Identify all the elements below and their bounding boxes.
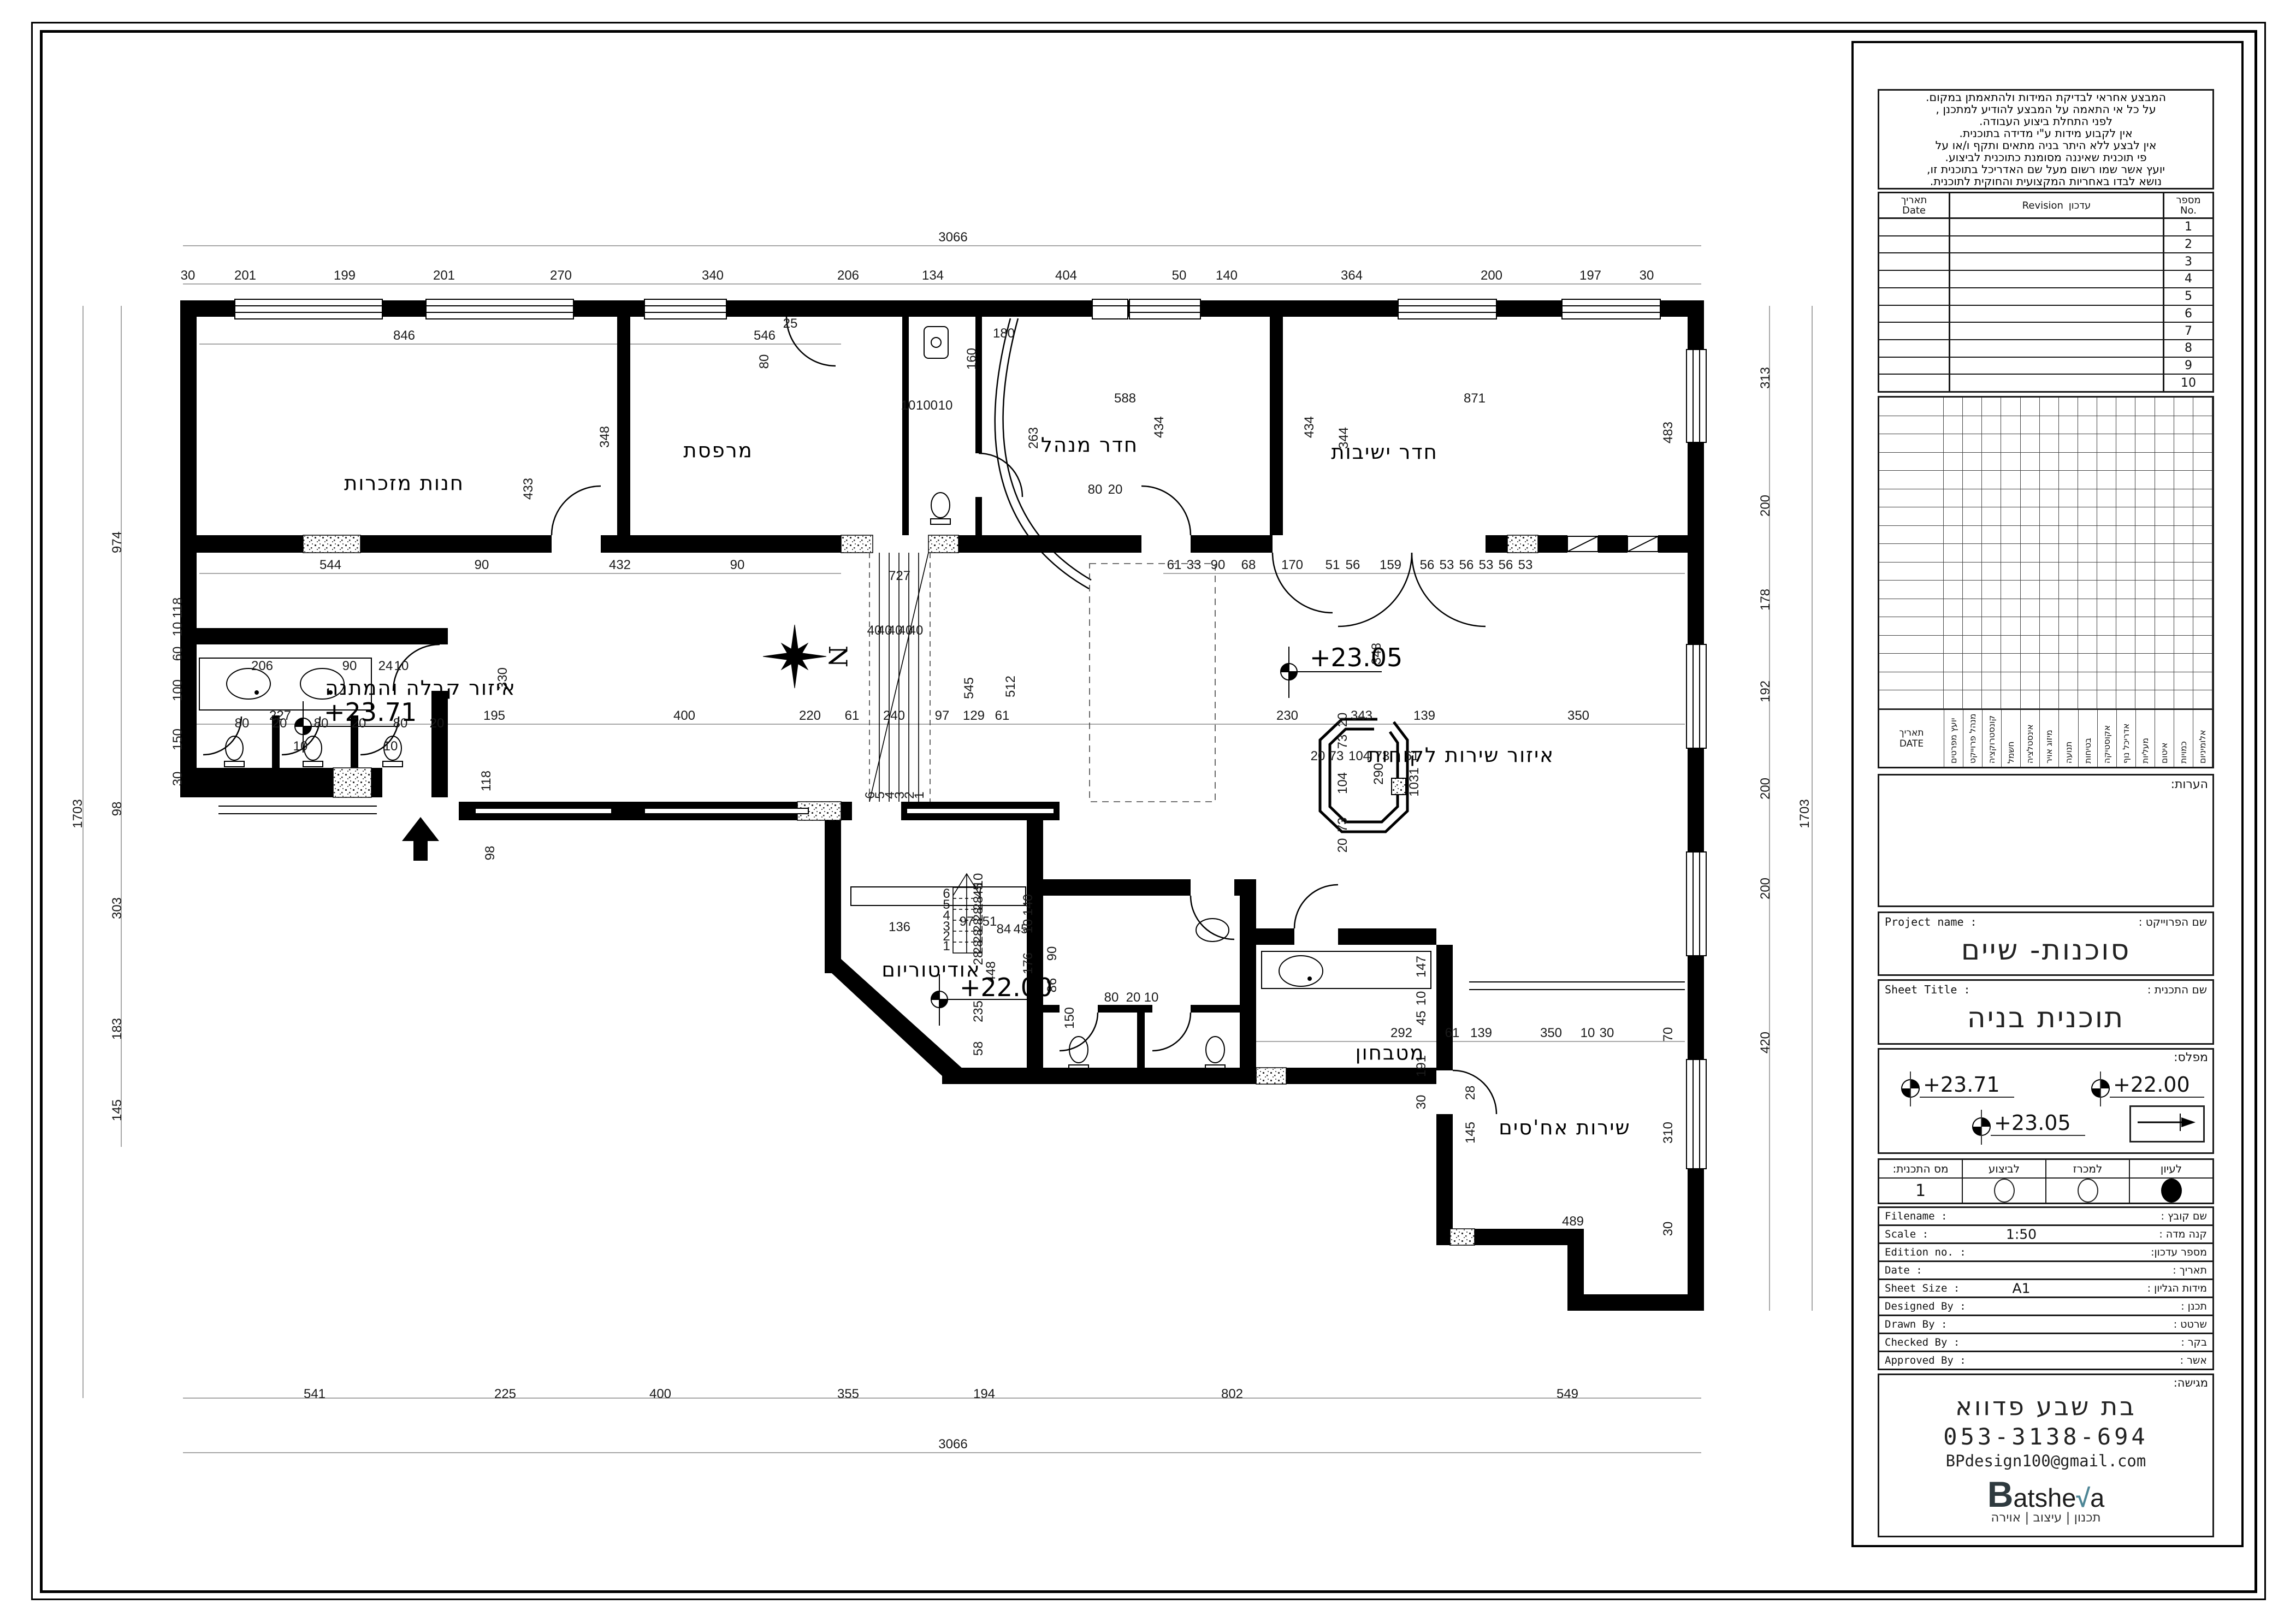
status-for-tender	[2046, 1179, 2130, 1203]
consultant-cell	[2001, 581, 2020, 599]
revision-row: 7	[1879, 323, 2212, 340]
consultant-cell	[2116, 398, 2135, 416]
consultant-column-label: איטום	[2155, 710, 2174, 767]
consultant-cell	[1944, 599, 1963, 618]
dim-label: 20	[1108, 482, 1123, 497]
consultant-cell	[2001, 416, 2020, 435]
dim-label: 313	[1758, 367, 1773, 389]
consultant-cell	[2059, 471, 2078, 489]
consultant-cell	[2155, 599, 2174, 618]
consultant-cell	[2021, 563, 2040, 581]
dim-label: 846	[393, 328, 415, 343]
consultant-cell	[2174, 434, 2193, 453]
consultant-cell	[1879, 654, 1944, 672]
consultant-cell	[2021, 544, 2040, 563]
consultant-cell	[1944, 617, 1963, 636]
consultant-cell	[1879, 672, 1944, 691]
consultant-column-label: מנהל פרוייקט	[1963, 710, 1983, 767]
consultant-column-label: תנועה	[2059, 710, 2078, 767]
consultant-cell	[2097, 471, 2116, 489]
dim-label: 90	[730, 558, 745, 572]
dim-label: 201	[234, 268, 256, 283]
level-marker: +23.05	[1972, 1111, 2085, 1136]
info-row: Edition no. :מספר עדכון:	[1878, 1242, 2214, 1260]
dim-label: 194	[973, 1387, 995, 1401]
consultant-cell	[2078, 599, 2097, 618]
consultant-cell	[2116, 690, 2135, 709]
dim-label: 1	[943, 939, 950, 954]
dim-label: 10	[938, 398, 953, 413]
dim-label: 90	[475, 558, 489, 572]
dim-label: 512	[1003, 676, 1018, 697]
sheet-label-en: Sheet Title :	[1885, 983, 1970, 996]
consultant-cell	[2001, 398, 2020, 416]
consultant-cell	[1963, 581, 1982, 599]
project-name: סוכנות- שיים	[1879, 934, 2212, 967]
note-line: על כל אי התאמה על המבצע להודיע למתכנן ,	[1879, 103, 2212, 115]
revision-row: 3	[1879, 253, 2212, 271]
revision-row: 5	[1879, 288, 2212, 306]
level-label: +22.00	[960, 973, 1052, 1002]
dim-label: 73	[1335, 818, 1350, 832]
consultant-cell	[1982, 507, 2001, 526]
dim-label: 140	[1216, 268, 1238, 283]
consultant-cell	[2078, 690, 2097, 709]
consultant-cell	[2078, 398, 2097, 416]
dim-label: 90	[1045, 946, 1060, 961]
dim-label: 30	[1640, 268, 1654, 283]
consultant-cell	[2116, 654, 2135, 672]
dim-label: 206	[251, 659, 273, 673]
consultant-cell	[2116, 434, 2135, 453]
consultant-cell	[2078, 489, 2097, 508]
dim-label: 340	[702, 268, 724, 283]
note-line: אין לקבוע מידות ע"י מדידה בתוכנית.	[1879, 127, 2212, 139]
notes-box: המבצע אחראי לבדיקת המידות ולהתאמתן במקום…	[1878, 89, 2214, 190]
consultant-cell	[2040, 581, 2059, 599]
main-stairs	[869, 553, 1215, 802]
consultant-cell	[2021, 416, 2040, 435]
consultant-column-label: בטיחות	[2079, 710, 2098, 767]
consultant-cell	[1982, 398, 2001, 416]
consultant-cell	[2097, 453, 2116, 471]
room-label: שירות אח'סים	[1499, 1116, 1630, 1139]
dim-label: 549	[1557, 1387, 1578, 1401]
dim-label: 50	[1172, 268, 1187, 283]
level-symbol-icon	[1972, 1117, 1991, 1136]
consultant-cell	[2135, 526, 2155, 544]
consultant-cell	[2001, 507, 2020, 526]
consultant-cell	[2078, 563, 2097, 581]
consultant-cell	[1879, 526, 1944, 544]
consultant-cell	[2135, 544, 2155, 563]
revision-rows: 12345678910	[1879, 219, 2212, 391]
consultant-cell	[2078, 416, 2097, 435]
consultant-cell	[2155, 563, 2174, 581]
dim-label: 240	[883, 708, 905, 723]
consultant-cell	[1963, 563, 1982, 581]
consultant-cell	[2078, 471, 2097, 489]
consultant-column-label: קונסטרוקציה	[1983, 710, 2002, 767]
dim-label: 80	[1104, 990, 1119, 1005]
dim-label: 10	[394, 659, 409, 673]
dim-label: 40	[909, 623, 924, 638]
dim-label: 400	[673, 708, 695, 723]
consultant-cell	[2059, 563, 2078, 581]
consultant-cell	[2001, 636, 2020, 654]
dim-label: 160	[964, 348, 979, 370]
hatch-patches	[303, 535, 1538, 1245]
consultant-cell	[2078, 453, 2097, 471]
dim-label: 200	[1481, 268, 1502, 283]
consultant-cell	[2135, 398, 2155, 416]
consultant-cell	[2059, 526, 2078, 544]
status-header: למכרז	[2046, 1160, 2130, 1177]
consultant-cell	[2155, 398, 2174, 416]
consultant-cell	[1963, 489, 1982, 508]
consultant-cell	[1982, 690, 2001, 709]
consultant-cell	[2155, 654, 2174, 672]
dim-label: 30	[1600, 1026, 1614, 1040]
consultant-cell	[2001, 526, 2020, 544]
note-line: נושא לבדו באחריות המקצועית והחוקית לתוכנ…	[1879, 175, 2212, 187]
consultant-cell	[1963, 544, 1982, 563]
consultant-cell	[2001, 544, 2020, 563]
consultants-date-cell: תאריך DATE	[1879, 710, 1944, 767]
dim-label: 10	[170, 622, 185, 637]
dim-label: 58	[971, 1041, 986, 1056]
dim-label: 159	[1380, 558, 1401, 572]
consultant-cell	[2059, 544, 2078, 563]
consultant-column-label: מעליות	[2136, 710, 2155, 767]
consultant-cell	[2193, 599, 2212, 618]
dim-label: 53	[1479, 558, 1494, 572]
info-row: Filename :שם קובץ :	[1878, 1206, 2214, 1224]
consultant-cell	[2174, 507, 2193, 526]
dim-label: 1703	[1797, 799, 1812, 828]
dim-label: 974	[110, 531, 125, 553]
dim-label: 230	[1276, 708, 1298, 723]
consultant-cell	[2001, 690, 2020, 709]
dim-label: 61	[1445, 1026, 1460, 1040]
consultant-cell	[2021, 690, 2040, 709]
room-label: חדר ישיבות	[1331, 440, 1438, 464]
consultant-cell	[2059, 599, 2078, 618]
consultant-cell	[1963, 416, 1982, 435]
consultant-cell	[2174, 398, 2193, 416]
consultant-cell	[2193, 636, 2212, 654]
dim-label: 10	[293, 739, 308, 754]
consultant-cell	[2021, 489, 2040, 508]
consultant-cell	[1963, 453, 1982, 471]
consultant-cell	[2174, 599, 2193, 618]
consultant-column-label: אקוסטיקה	[2098, 710, 2117, 767]
consultant-cell	[1982, 526, 2001, 544]
consultant-cell	[1963, 654, 1982, 672]
consultant-column-label: אדריכל נוף	[2117, 710, 2136, 767]
dim-label: 61	[1167, 558, 1182, 572]
dim-label: 68	[1241, 558, 1256, 572]
consultant-cell	[2001, 471, 2020, 489]
consultant-cell	[2155, 690, 2174, 709]
consultant-cell	[2040, 434, 2059, 453]
dim-label: 180	[993, 326, 1015, 341]
consultant-cell	[2193, 690, 2212, 709]
dim-label: 84	[997, 922, 1011, 937]
info-row: Sheet Size :A1מידות הגליון :	[1878, 1278, 2214, 1297]
note-line: אין לבצע ללא היתר בניה מתאים ותקף ו/או ע…	[1879, 139, 2212, 151]
consultant-cell	[2078, 544, 2097, 563]
consultant-cell	[1879, 544, 1944, 563]
rev-date-en: Date	[1902, 205, 1926, 216]
dim-label: 51	[1325, 558, 1340, 572]
dim-label: 220	[799, 708, 821, 723]
levels-label: מפלס:	[2174, 1051, 2208, 1064]
consultant-cell	[1982, 617, 2001, 636]
dim-label: 364	[1341, 268, 1363, 283]
consultant-cell	[2059, 636, 2078, 654]
consultants-date-he: תאריך	[1899, 727, 1924, 738]
dim-label: 136	[889, 920, 910, 934]
consultant-cell	[1879, 690, 1944, 709]
room-label: חנות מזכרות	[344, 471, 464, 495]
consultant-cell	[2040, 453, 2059, 471]
dim-label: 292	[1390, 1026, 1412, 1040]
consultant-cell	[2001, 672, 2020, 691]
dim-label: 588	[1114, 391, 1136, 406]
consultant-cell	[2097, 507, 2116, 526]
consultant-cell	[1944, 471, 1963, 489]
dim-label: 350	[1567, 708, 1589, 723]
dim-label: 10	[1021, 919, 1035, 934]
status-header: מס התכנית:	[1879, 1160, 1963, 1177]
consultant-cell	[2097, 672, 2116, 691]
consultant-cell	[2040, 526, 2059, 544]
dim-label: 20	[273, 716, 287, 731]
revision-row: 4	[1879, 271, 2212, 288]
consultant-cell	[2021, 636, 2040, 654]
consultant-cell	[2193, 617, 2212, 636]
consultant-cell	[2078, 507, 2097, 526]
dim-label: 355	[837, 1387, 859, 1401]
consultant-cell	[2097, 599, 2116, 618]
consultant-cell	[2116, 416, 2135, 435]
consultant-cell	[1963, 617, 1982, 636]
dim-label: 129	[963, 708, 985, 723]
consultant-cell	[2193, 471, 2212, 489]
dim-label: 10	[1144, 990, 1159, 1005]
dim-label: 150	[170, 729, 185, 750]
project-label-he: שם הפרוייקט :	[2139, 915, 2207, 928]
revision-header: תאריךDate Revisionעדכון מספרNo.	[1879, 193, 2212, 219]
consultant-cell	[1963, 398, 1982, 416]
dim-label: 195	[483, 708, 505, 723]
info-row: Scale :1:50קנה מדה :	[1878, 1224, 2214, 1242]
dim-label: 1	[912, 791, 927, 798]
batsheva-logo: Batshe√a	[1879, 1473, 2212, 1515]
consultant-cell	[2116, 563, 2135, 581]
consultant-cell	[1944, 563, 1963, 581]
consultant-cell	[1944, 581, 1963, 599]
submitter-box: מגישה: בת שבע פדווא 053-3138-694 BPdesig…	[1878, 1374, 2214, 1537]
dim-label: 10	[971, 873, 986, 888]
dim-label: 170	[1281, 558, 1303, 572]
dim-label: 434	[1152, 416, 1167, 438]
dim-label: 98	[483, 846, 498, 861]
consultant-cell	[2116, 453, 2135, 471]
consultant-cell	[2021, 599, 2040, 618]
rev-col-he: עדכון	[2069, 200, 2091, 211]
consultant-cell	[2059, 581, 2078, 599]
dim-label: 90	[1211, 558, 1226, 572]
dim-label: 483	[1661, 422, 1676, 443]
consultant-cell	[2155, 453, 2174, 471]
dim-label: 20	[1335, 713, 1350, 727]
consultant-cell	[2135, 489, 2155, 508]
consultant-cell	[2059, 672, 2078, 691]
consultant-cell	[1879, 489, 1944, 508]
consultant-cell	[2021, 672, 2040, 691]
consultant-cell	[2116, 636, 2135, 654]
consultant-cell	[2193, 398, 2212, 416]
level-marker: +23.71	[1901, 1073, 2014, 1098]
dim-label: 192	[1758, 680, 1773, 702]
dim-label: 140	[1021, 894, 1035, 916]
consultant-cell	[1982, 471, 2001, 489]
revision-row: 10	[1879, 375, 2212, 391]
walls	[180, 300, 1704, 1311]
octagon-counter	[1320, 719, 1407, 832]
revision-row: 6	[1879, 306, 2212, 323]
dim-label: 56	[1346, 558, 1360, 572]
level-value: +23.05	[1991, 1111, 2085, 1136]
revision-row: 8	[1879, 340, 2212, 358]
dim-label: 10	[901, 398, 916, 413]
consultant-cell	[2001, 453, 2020, 471]
dim-label: 97	[935, 708, 950, 723]
consultant-cell	[1944, 398, 1963, 416]
dim-label: 434	[1302, 416, 1317, 438]
consultant-cell	[2078, 617, 2097, 636]
consultant-cell	[2193, 416, 2212, 435]
logo-tagline: תכנון | עיצוב | אוירה	[1879, 1511, 2212, 1525]
note-line: המבצע אחראי לבדיקת המידות ולהתאמתן במקום…	[1879, 91, 2212, 103]
consultant-cell	[2097, 398, 2116, 416]
level-value: +22.00	[2110, 1073, 2204, 1098]
rev-no-en: No.	[2180, 205, 2197, 216]
revision-table: תאריךDate Revisionעדכון מספרNo. 12345678…	[1878, 192, 2214, 393]
consultant-cell	[2097, 563, 2116, 581]
consultant-cell	[1879, 471, 1944, 489]
consultant-cell	[2174, 489, 2193, 508]
sheet-title-box: Sheet Title : שם התכנית : תוכנית בניה	[1878, 979, 2214, 1045]
info-row: Checked By :בקר :	[1878, 1333, 2214, 1351]
dim-label: 30	[170, 772, 185, 786]
consultant-cell	[2155, 507, 2174, 526]
consultant-cell	[2155, 672, 2174, 691]
consultant-cell	[1982, 453, 2001, 471]
consultant-cell	[2135, 636, 2155, 654]
info-row: Approved By :אשר :	[1878, 1351, 2214, 1370]
consultant-cell	[2059, 489, 2078, 508]
consultant-cell	[2193, 672, 2212, 691]
consultant-cell	[2097, 544, 2116, 563]
consultant-cell	[2116, 672, 2135, 691]
consultant-cell	[2193, 526, 2212, 544]
dim-label: 98	[110, 802, 125, 816]
direction-arrow-box	[2129, 1105, 2205, 1142]
consultant-cell	[2021, 434, 2040, 453]
consultant-cell	[2155, 526, 2174, 544]
dim-label: 544	[319, 558, 341, 572]
dim-label: 10	[383, 739, 398, 754]
dim-label: 100	[170, 679, 185, 701]
consultant-cell	[2135, 672, 2155, 691]
status-table: מס התכנית:לביצועלמכרזלעיון 1	[1878, 1158, 2214, 1204]
consultant-cell	[2193, 563, 2212, 581]
consultant-column-label: כמויות	[2174, 710, 2193, 767]
consultant-cell	[2116, 489, 2135, 508]
consultant-cell	[2135, 471, 2155, 489]
consultant-cell	[2097, 690, 2116, 709]
consultant-cell	[1944, 672, 1963, 691]
consultant-cell	[2174, 471, 2193, 489]
dim-label: 145	[110, 1099, 125, 1121]
consultant-cell	[2040, 617, 2059, 636]
consultant-cell	[1944, 507, 1963, 526]
status-for-review	[2130, 1179, 2212, 1203]
status-values: 1	[1879, 1179, 2212, 1203]
dim-label: 3066	[938, 230, 967, 245]
dim-label: 727	[889, 569, 910, 583]
revision-row: 9	[1879, 358, 2212, 375]
level-value: +23.71	[1920, 1073, 2014, 1098]
consultant-cell	[2001, 654, 2020, 672]
consultant-cell	[2021, 581, 2040, 599]
dim-label: 20	[1311, 749, 1325, 763]
consultant-cell	[1944, 636, 1963, 654]
kitchen-sink	[1279, 956, 1323, 986]
consultants-labels: תאריך DATE יועץ מפרטיםמנהל פרוייקטקונסטר…	[1879, 709, 2212, 767]
consultant-cell	[2040, 507, 2059, 526]
consultant-cell	[2155, 416, 2174, 435]
submitter-phone: 053-3138-694	[1879, 1423, 2212, 1450]
status-for-execution	[1963, 1179, 2046, 1203]
consultant-cell	[2040, 489, 2059, 508]
consultant-cell	[2040, 672, 2059, 691]
dim-label: 10	[1414, 991, 1429, 1006]
note-line: פי תוכנית שאיננה מסומנת כתוכנית לביצוע.	[1879, 151, 2212, 163]
consultant-cell	[2040, 654, 2059, 672]
dim-label: 206	[837, 268, 859, 283]
dim-label: 270	[550, 268, 572, 283]
info-row: Designed By :תכנן :	[1878, 1297, 2214, 1315]
consultant-cell	[1944, 453, 1963, 471]
consultant-cell	[2116, 599, 2135, 618]
level-label: +23.05	[1310, 643, 1403, 672]
level-symbol-icon	[2091, 1079, 2110, 1098]
dim-label: 28	[1463, 1086, 1478, 1100]
consultant-cell	[1963, 434, 1982, 453]
dim-label: 404	[1055, 268, 1077, 283]
consultant-cell	[1963, 526, 1982, 544]
consultant-cell	[2059, 617, 2078, 636]
consultant-column-label: חשמל	[2002, 710, 2021, 767]
dim-label: 70	[1661, 1027, 1676, 1042]
consultant-cell	[2155, 581, 2174, 599]
plan-text-layer: 3020119920127034020613440450140364200197…	[70, 230, 1812, 1452]
consultants-table: תאריך DATE יועץ מפרטיםמנהל פרוייקטקונסטר…	[1878, 396, 2214, 768]
